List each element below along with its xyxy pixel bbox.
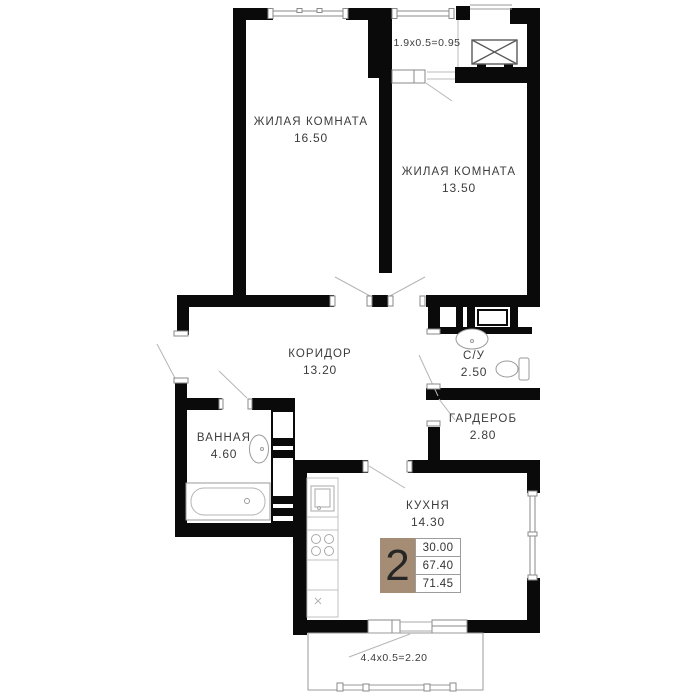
balcony-door-kitchen (368, 620, 400, 633)
window-kitchen-right (528, 491, 537, 580)
wall-room1-top-left (233, 8, 273, 20)
room-name: С/У (461, 350, 488, 362)
shaft-foot (504, 61, 513, 68)
room-name: КУХНЯ (406, 500, 450, 512)
label-balcony-bottom: 4.4x0.5=2.20 (360, 652, 427, 664)
room-name: ЖИЛАЯ КОМНАТА (254, 116, 368, 128)
wall-room2-top-band (455, 67, 540, 83)
bath-shaft-stripe (271, 450, 295, 458)
bathtub (186, 483, 270, 520)
wall-wc-left (428, 295, 440, 333)
balcony-bottom-window-ticks (337, 683, 456, 691)
balcony-door-room2 (392, 70, 425, 83)
shaft-foot (477, 61, 486, 68)
kitchen-sink (311, 486, 334, 511)
label-balcony-top: 1.9x0.5=0.95 (393, 37, 460, 49)
room-area: 4.60 (197, 447, 251, 461)
wall-wardrobe-left (428, 427, 440, 460)
wall-bath-top-a (175, 398, 222, 410)
wall-partition-rooms (379, 70, 392, 273)
wall-kitchen-right-upper (527, 460, 540, 493)
wc-duct-bar (467, 307, 475, 327)
room-name: КОРИДОР (288, 348, 352, 360)
label-room-wc: С/У 2.50 (461, 350, 488, 379)
wc-duct-bar (456, 307, 463, 327)
wall-partition-top-chunk (368, 8, 392, 78)
wall-room1-left (233, 8, 246, 300)
wall-corridor-left-upper (177, 295, 189, 335)
kitchen-stove (312, 535, 334, 556)
bath-shaft-stripe (271, 496, 295, 504)
label-room-kitchen: КУХНЯ 14.30 (406, 500, 450, 529)
wall-wardrobe-bottom (408, 460, 540, 473)
balcony-window-kitchen (432, 620, 467, 633)
label-room-wardrobe: ГАРДЕРОБ 2.80 (449, 413, 517, 442)
wall-room2-right (527, 83, 540, 307)
wc-duct-bar (510, 307, 518, 327)
area-summary-value: 30.00 (415, 538, 461, 557)
room-area: 14.30 (406, 515, 450, 529)
wall-kitchen-top (300, 460, 368, 473)
area-summary-value: 71.45 (415, 574, 461, 593)
label-room-bathroom: ВАННАЯ 4.60 (197, 432, 251, 461)
room-area: 13.20 (288, 363, 352, 377)
label-room-living1: ЖИЛАЯ КОМНАТА 16.50 (254, 116, 368, 145)
wc-duct-bottom-bar (440, 327, 532, 334)
wall-wardrobe-top (426, 388, 540, 400)
wall-top-pier (456, 6, 470, 20)
toilet (496, 358, 529, 380)
window-balcony-top (392, 9, 454, 19)
bath-shaft-stripe (271, 508, 295, 516)
room-area: 16.50 (254, 131, 368, 145)
wall-kitchen-bottom-right (467, 620, 540, 633)
window-room1-top (268, 9, 348, 19)
room-name: ЖИЛАЯ КОМНАТА (402, 166, 516, 178)
label-room-living2: ЖИЛАЯ КОМНАТА 13.50 (402, 166, 516, 195)
kitchen-mark (315, 598, 321, 604)
room-area: 13.50 (402, 181, 516, 195)
room-name: ВАННАЯ (197, 432, 251, 444)
area-summary-table: 30.00 67.40 71.45 (415, 538, 461, 593)
wc-duct-box (477, 309, 508, 326)
wall-wc-top (426, 295, 540, 307)
kitchen-counter (307, 478, 338, 617)
floor-plan: ЖИЛАЯ КОМНАТА 16.50 ЖИЛАЯ КОМНАТА 13.50 … (0, 0, 700, 700)
label-room-corridor: КОРИДОР 13.20 (288, 348, 352, 377)
bath-shaft-column (271, 410, 295, 523)
wall-kitchen-left (293, 460, 307, 635)
room-name: ГАРДЕРОБ (449, 413, 517, 425)
wall-door-stub (372, 295, 388, 307)
balcony-pier-lines (400, 622, 432, 631)
balcony-top-edge (427, 20, 458, 79)
wall-corridor-top-left (177, 295, 334, 307)
bathroom-sink (250, 435, 269, 463)
wall-bath-top-b (252, 398, 295, 410)
window-above-shaft (470, 5, 512, 9)
room-area: 2.50 (461, 365, 488, 379)
area-summary-value: 67.40 (415, 556, 461, 575)
room-area: 2.80 (449, 428, 517, 442)
bath-shaft-stripe (271, 438, 295, 446)
wall-bath-bottom (175, 523, 303, 537)
rooms-count-badge: 2 (380, 538, 415, 593)
wall-kitchen-bottom-left (293, 620, 368, 633)
